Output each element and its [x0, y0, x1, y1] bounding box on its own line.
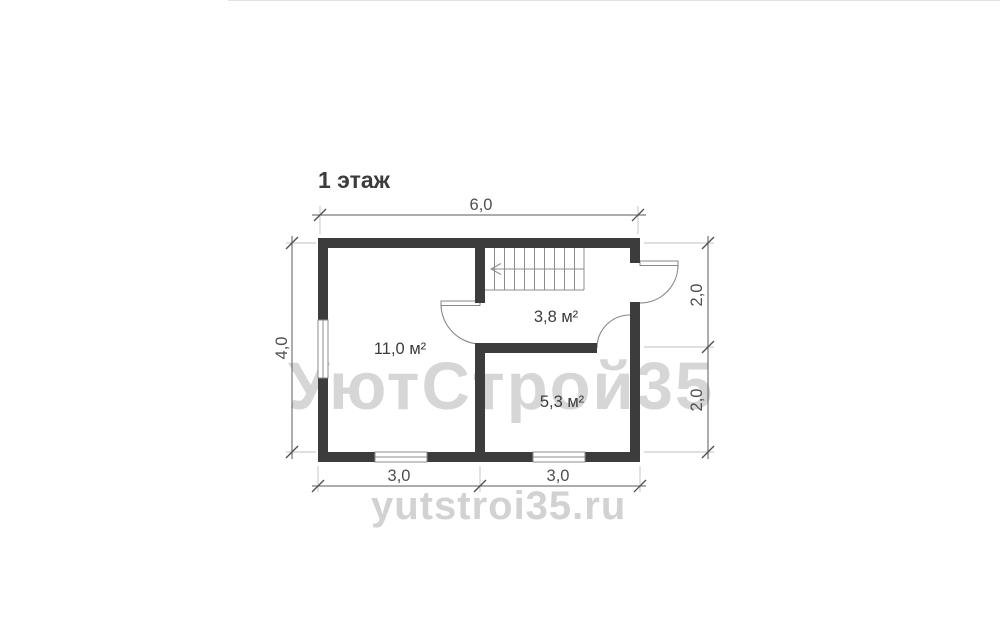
- stairs: [485, 248, 584, 290]
- window-left: [318, 320, 328, 378]
- floor-plan-svg: УютСтрой35 yutstroi35.ru 1 этаж: [0, 0, 1000, 640]
- dim-left-label: 4,0: [273, 337, 291, 360]
- door-room-5-3: [597, 315, 630, 348]
- wall-bottom-left: [318, 452, 375, 462]
- wall-interior-vertical-lower: [475, 343, 485, 452]
- dim-bottom-left-label: 3,0: [388, 467, 411, 485]
- wall-bottom-right: [585, 452, 640, 462]
- wall-interior-horizontal: [485, 343, 597, 353]
- dimension-left: 4,0: [273, 236, 316, 459]
- dim-right-lower-label: 2,0: [688, 389, 706, 412]
- room-11-0-area-label: 11,0 м²: [374, 340, 427, 358]
- wall-bottom-middle: [427, 452, 533, 462]
- dim-top-label: 6,0: [470, 196, 493, 214]
- room-5-3-area-label: 5,3 м²: [540, 393, 585, 411]
- door-room-11-0: [441, 301, 481, 344]
- door-entrance: [640, 261, 678, 303]
- floor-plan-page: УютСтрой35 yutstroi35.ru 1 этаж: [0, 0, 1000, 640]
- dim-right-upper-label: 2,0: [688, 284, 706, 307]
- wall-left-lower: [318, 378, 328, 462]
- window-bottom-left: [375, 452, 427, 462]
- wall-interior-vertical-upper: [475, 248, 485, 303]
- wall-right-lower: [630, 302, 640, 462]
- wall-left-upper: [318, 238, 328, 320]
- wall-right-upper: [630, 238, 640, 263]
- dim-bottom-right-label: 3,0: [547, 467, 570, 485]
- dimension-right: 2,0 2,0: [644, 236, 714, 459]
- floor-title: 1 этаж: [318, 167, 391, 193]
- brand-watermark: УютСтрой35: [288, 349, 714, 424]
- site-watermark: yutstroi35.ru: [371, 484, 626, 528]
- room-3-8-area-label: 3,8 м²: [534, 308, 579, 326]
- wall-top: [318, 238, 640, 248]
- window-bottom-right: [533, 452, 585, 462]
- dimension-top: 6,0: [312, 196, 646, 234]
